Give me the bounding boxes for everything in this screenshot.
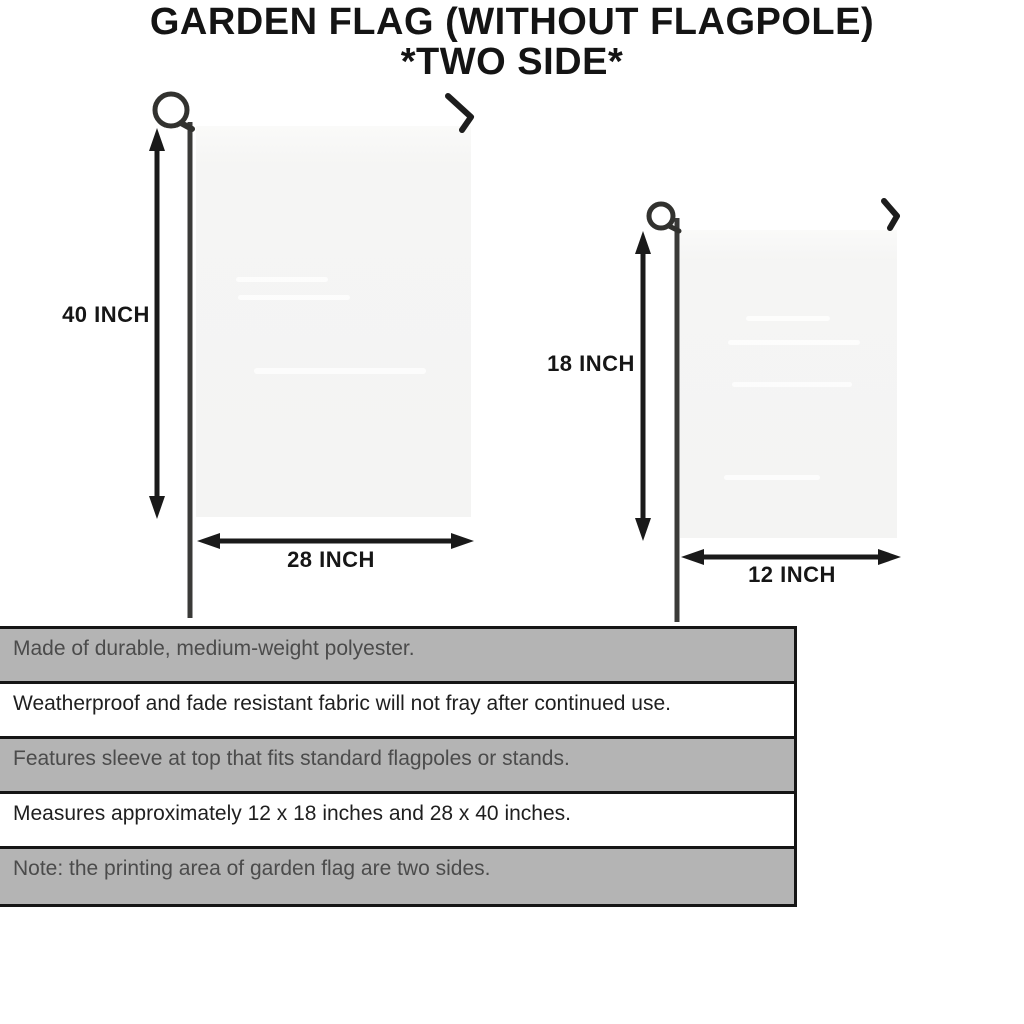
spec-row-sleeve: Features sleeve at top that fits standar… — [0, 739, 794, 794]
sleeve-hook-icon — [448, 96, 471, 130]
fabric-fold-streak — [728, 340, 860, 345]
sleeve-hook-icon — [884, 201, 897, 228]
large-flag-height-label: 40 INCH — [62, 302, 150, 328]
product-spec-table: Made of durable, medium-weight polyester… — [0, 626, 797, 907]
product-size-chart: GARDEN FLAG (WITHOUT FLAGPOLE) *TWO SIDE… — [0, 0, 1024, 1024]
page-title: GARDEN FLAG (WITHOUT FLAGPOLE) *TWO SIDE… — [0, 2, 1024, 82]
small-flagpole-icon — [649, 204, 679, 622]
large-flagpole-icon — [155, 94, 192, 618]
fabric-fold-streak — [732, 382, 852, 387]
title-line-2: *TWO SIDE* — [0, 42, 1024, 82]
pole-loop-icon — [155, 94, 187, 126]
height-arrow-18 — [635, 231, 651, 541]
title-line-1: GARDEN FLAG (WITHOUT FLAGPOLE) — [0, 2, 1024, 42]
spec-row-measures: Measures approximately 12 x 18 inches an… — [0, 794, 794, 849]
small-flag-width-label: 12 INCH — [748, 562, 836, 588]
large-flag-fabric — [196, 126, 471, 517]
small-flag-fabric — [680, 230, 897, 538]
spec-row-material: Made of durable, medium-weight polyester… — [0, 629, 794, 684]
fabric-fold-streak — [236, 277, 328, 282]
small-flag-height-label: 18 INCH — [547, 351, 635, 377]
height-arrow-40 — [149, 128, 165, 519]
spec-row-note: Note: the printing area of garden flag a… — [0, 849, 794, 904]
large-flag-width-label: 28 INCH — [287, 547, 375, 573]
fabric-fold-streak — [238, 295, 350, 300]
fabric-fold-streak — [746, 316, 830, 321]
spec-row-weatherproof: Weatherproof and fade resistant fabric w… — [0, 684, 794, 739]
pole-loop-icon — [649, 204, 673, 228]
fabric-fold-streak — [254, 368, 426, 374]
fabric-fold-streak — [724, 475, 820, 480]
